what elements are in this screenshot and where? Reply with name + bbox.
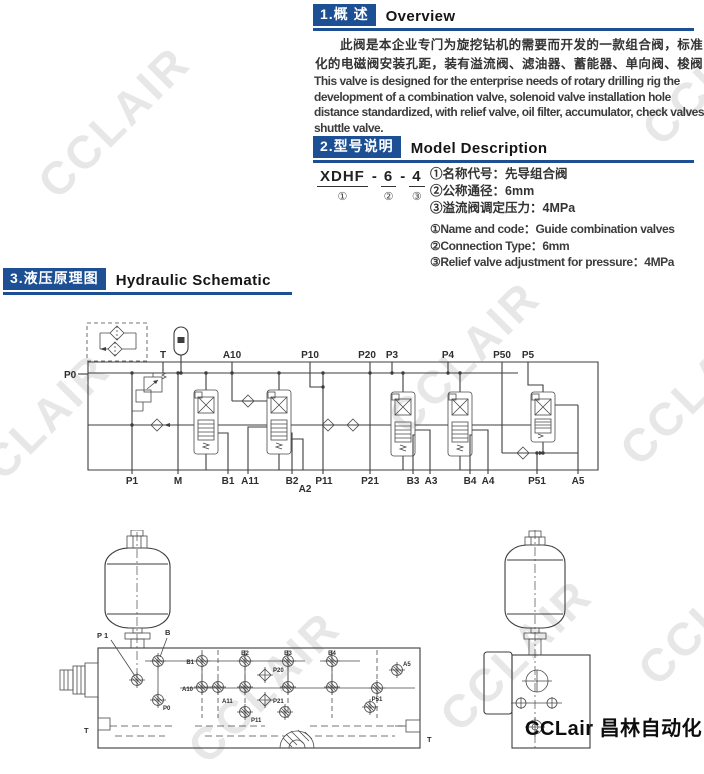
port-label: A11 xyxy=(241,476,259,487)
model-note-en: ②Connection Type：6mm xyxy=(430,238,675,255)
relief-valve-symbol xyxy=(132,373,166,411)
valve-cartridge xyxy=(267,390,291,454)
port-label: M xyxy=(174,476,182,487)
overview-section-header: 1.概 述 Overview xyxy=(313,4,694,31)
port-label: A5 xyxy=(403,662,411,668)
model-code-mark-1: ① xyxy=(337,190,347,203)
port-label: B4 xyxy=(464,476,477,487)
model-code-size: 6 xyxy=(381,168,396,187)
port-label: A4 xyxy=(482,476,495,487)
port-label: A5 xyxy=(572,476,585,487)
model-section-header: 2.型号说明 Model Description xyxy=(313,136,694,163)
overview-text-cn: 此阀是本企业专门为旋挖钻机的需要而开发的一款组合阀，标准化的电磁阀安装孔距，装有… xyxy=(315,36,703,74)
ports-front xyxy=(129,653,405,720)
catalog-page: { "watermark": { "text": "CCLAIR", "colo… xyxy=(0,0,704,752)
check-valve-symbols xyxy=(151,395,545,459)
leader-lines xyxy=(111,638,167,676)
arch-cutout xyxy=(280,730,314,748)
valve-cartridge xyxy=(448,392,472,456)
schematic-title: Hydraulic Schematic xyxy=(116,272,271,290)
model-code-dash: - xyxy=(372,168,377,186)
schematic-frame xyxy=(88,362,598,470)
schematic-number-badge: 3.液压原理图 xyxy=(3,268,106,290)
model-notes-cn: ①名称代号：先导组合阀 ②公称通径：6mm ③溢流阀调定压力：4MPa xyxy=(430,166,575,217)
model-note-en: ①Name and code：Guide combination valves xyxy=(430,221,675,238)
port-p0: P0 xyxy=(64,370,88,381)
port-label: B1 xyxy=(222,476,235,487)
model-code-prefix: XDHF xyxy=(317,168,368,187)
schematic-top-ports: T A10 P10 P20 P3 P4 P50 P5 xyxy=(160,350,535,361)
schematic-section-header: 3.液压原理图 Hydraulic Schematic xyxy=(3,268,292,295)
accumulator-front xyxy=(105,530,170,648)
port-label: A10 xyxy=(223,350,242,361)
port-label: B3 xyxy=(407,476,420,487)
port-label: P5 xyxy=(522,350,535,361)
accumulator-symbol xyxy=(174,327,188,373)
front-view-drawing: P 1 B B1 A10 A11 P0 B2 P11 P20 P21 B3 B4… xyxy=(55,530,475,752)
model-notes-en: ①Name and code：Guide combination valves … xyxy=(430,221,675,271)
schematic-bottom-ports: P1 M B1 A11 B2 A2 P11 P21 B3 A3 B4 A4 P5… xyxy=(126,476,585,495)
hose-fitting xyxy=(60,663,98,697)
overview-number-badge: 1.概 述 xyxy=(313,4,376,26)
port-label: P10 xyxy=(301,350,319,361)
port-label: P21 xyxy=(273,699,284,705)
model-code-mark-2: ② xyxy=(384,190,394,203)
model-note-cn: ②公称通径：6mm xyxy=(430,183,575,200)
port-label: B1 xyxy=(186,660,194,666)
overview-title: Overview xyxy=(386,8,456,26)
port-label: P21 xyxy=(361,476,379,487)
valve-cartridge xyxy=(391,392,415,456)
watermark: CCLAIR xyxy=(27,35,201,209)
port-label: P50 xyxy=(493,350,511,361)
port-label: P51 xyxy=(528,476,546,487)
model-note-cn: ③溢流阀调定压力：4MPa xyxy=(430,200,575,217)
port-label: B2 xyxy=(241,651,249,657)
port-label: T xyxy=(427,735,432,744)
port-label: A10 xyxy=(182,687,194,693)
valve-cartridge xyxy=(531,392,555,442)
junction-dots xyxy=(130,371,544,454)
port-label: T xyxy=(160,350,166,361)
port-label: P4 xyxy=(442,350,455,361)
port-label: A3 xyxy=(425,476,438,487)
front-view-labels: P 1 B B1 A10 A11 P0 B2 P11 P20 P21 B3 B4… xyxy=(84,628,432,744)
port-label: B4 xyxy=(328,651,336,657)
model-code: XDHF ① - 6 ② - 4 ③ xyxy=(317,168,425,203)
model-note-cn: ①名称代号：先导组合阀 xyxy=(430,166,575,183)
model-code-dash: - xyxy=(400,168,405,186)
hydraulic-schematic-diagram: P0 xyxy=(60,313,660,518)
schematic-wiring xyxy=(88,362,578,474)
port-label: P 1 xyxy=(97,631,108,640)
port-label: P11 xyxy=(251,718,262,724)
port-label: B3 xyxy=(284,651,292,657)
brand-logo: CCLair 昌林自动化 xyxy=(525,712,702,741)
port-label: P3 xyxy=(386,350,399,361)
port-label: P1 xyxy=(126,476,139,487)
port-label: P0 xyxy=(163,706,171,712)
valve-cartridge xyxy=(194,390,218,454)
construction-lines xyxy=(110,650,415,736)
port-label: T xyxy=(84,726,89,735)
filter-box xyxy=(87,323,147,361)
port-label: P11 xyxy=(315,476,333,487)
port-label: P0 xyxy=(64,370,77,381)
overview-text-en: This valve is designed for the enterpris… xyxy=(314,74,704,136)
model-title: Model Description xyxy=(411,140,548,158)
port-label: P20 xyxy=(358,350,376,361)
port-label: B2 xyxy=(286,476,299,487)
model-code-pressure: 4 xyxy=(409,168,424,187)
port-label: A11 xyxy=(222,699,233,705)
model-number-badge: 2.型号说明 xyxy=(313,136,401,158)
port-label: P20 xyxy=(273,668,284,674)
model-note-en: ③Relief valve adjustment for pressure：4M… xyxy=(430,254,675,271)
port-label: A2 xyxy=(299,484,312,495)
model-code-mark-3: ③ xyxy=(412,190,422,203)
port-label: B xyxy=(165,628,171,637)
port-label: P51 xyxy=(372,697,383,703)
